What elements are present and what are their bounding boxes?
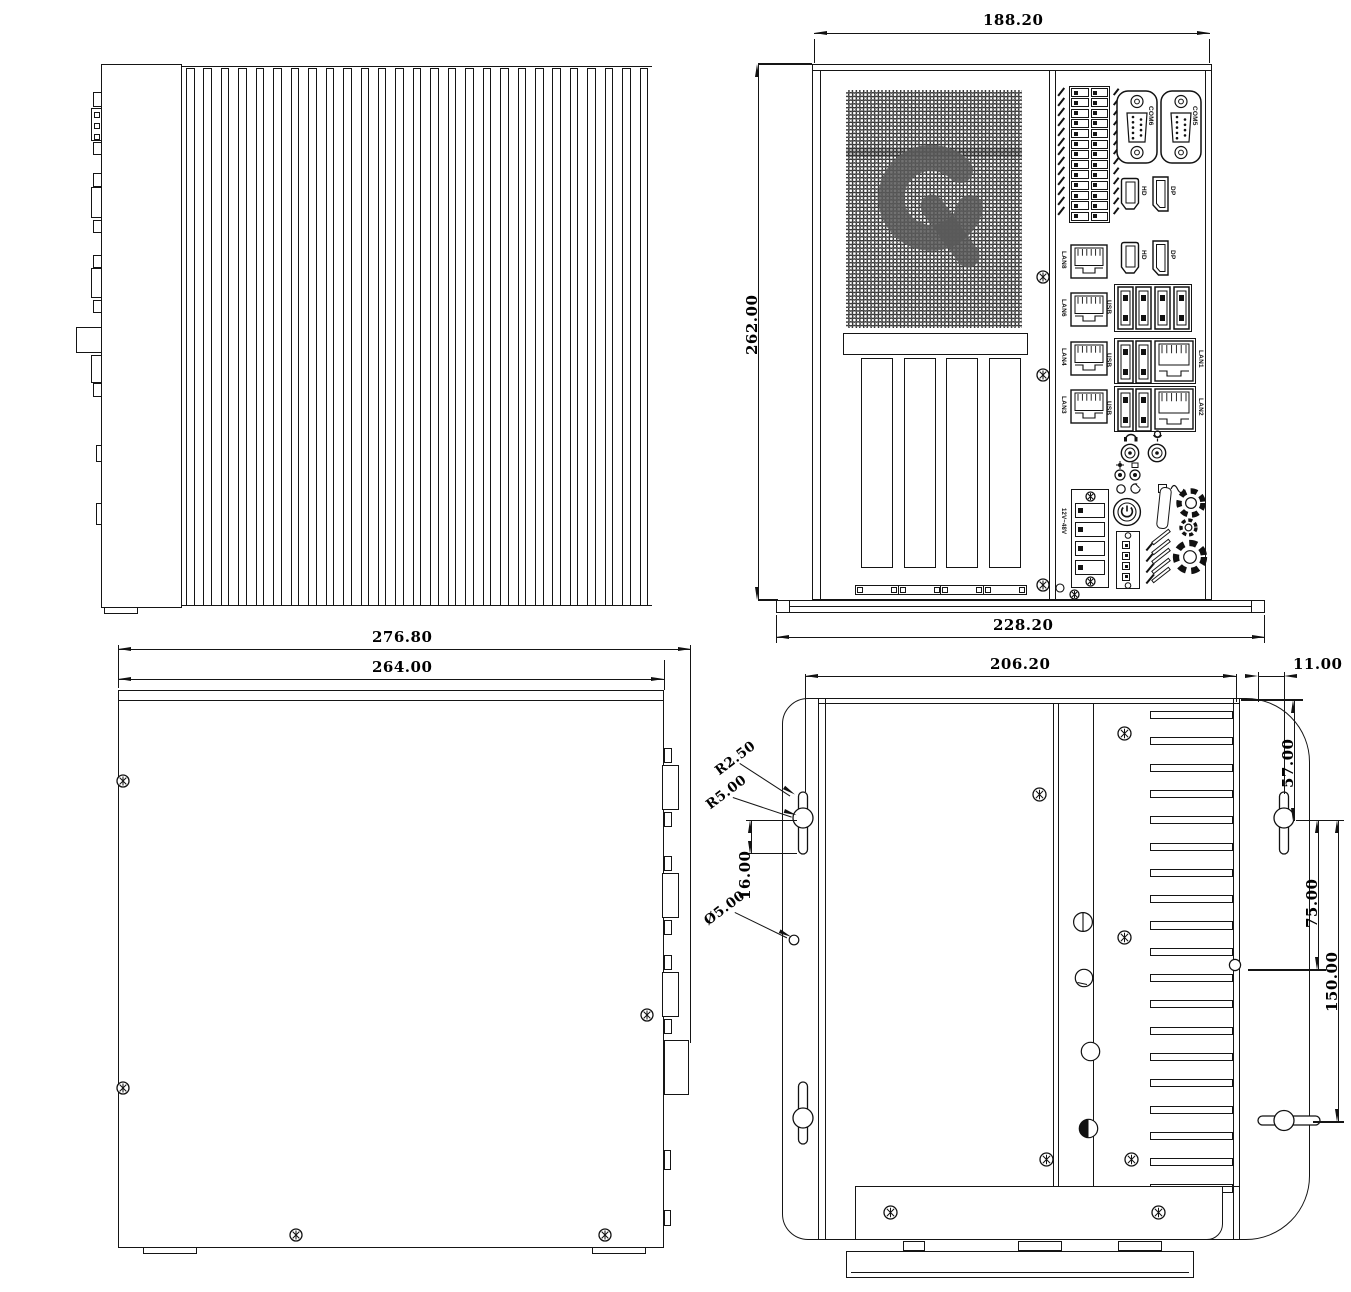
drawing-box [843,333,1028,355]
usb-port [1117,340,1134,384]
drawing-box [664,1019,672,1034]
drawing-line [1128,451,1132,455]
drawing-box [448,68,457,606]
screw-icon [116,774,130,788]
drawing-line [1141,397,1146,403]
screw-icon [116,1081,130,1095]
usb-combo2-label: USB [1105,401,1112,415]
drawing-line [1123,369,1128,375]
drawing-box [91,268,102,298]
drawing-line [758,63,812,64]
drawing-line [812,70,1212,71]
lan4-label: LAN4 [1060,348,1067,366]
lan2-port [1154,388,1194,430]
drawing-line [182,605,652,606]
drawing-line [1185,524,1192,531]
drawing-line [1176,137,1179,140]
usb-port [1135,340,1152,384]
drawing-box [1118,1241,1162,1251]
drawing-line [805,674,818,678]
drawing-line [1179,295,1184,301]
drawing-line [776,635,789,639]
drawing-line [1229,959,1240,970]
lan4-port [1070,341,1108,376]
drawing-line [1093,142,1097,146]
drawing-line [1093,111,1097,115]
drawing-line [1175,96,1187,108]
drawing-line [1184,551,1197,564]
dim-label: 188.20 [983,11,1043,29]
drawing-line [1184,124,1187,127]
drawing-line [746,820,797,821]
drawing-box [94,112,100,118]
drawing-line [664,660,665,690]
drawing-box [1150,1000,1233,1008]
dim-label: 262.00 [743,295,761,355]
hdmi2-label: HD [1140,250,1147,260]
screw-icon [1032,787,1047,802]
drawing-line [1078,546,1083,551]
drawing-line [1179,491,1203,515]
drawing-line [1209,39,1210,63]
drawing-line [1081,1042,1099,1060]
antenna-hole [1130,483,1141,494]
drawing-line [776,637,1265,638]
screw-icon [1036,270,1050,284]
drawing-line [1223,674,1236,678]
drawing-line [1093,204,1097,208]
drawing-line [1074,101,1078,105]
dp-port-1 [1150,175,1171,213]
drawing-line [1075,345,1103,363]
drawing-line [1093,194,1097,198]
drawing-box [76,327,102,353]
drawing-line [1074,152,1078,156]
drawing-line [758,599,778,600]
screw-icon [1117,930,1132,945]
drawing-line [1053,703,1054,1186]
drawing-line [1141,315,1146,321]
drawing-line [1155,431,1161,437]
drawing-box [1018,1241,1062,1251]
drawing-line [118,647,131,651]
drawing-box [776,600,790,613]
drawing-box [91,355,102,383]
drawing-box [93,142,102,155]
drawing-box [1150,1132,1233,1140]
drawing-line [1176,116,1179,119]
drawing-box [273,68,282,606]
drawing-line [1093,152,1097,156]
drawing-line [1175,147,1187,159]
drawing-box [1150,1079,1233,1087]
drawing-box [622,68,631,606]
lineout-icon [1123,430,1138,442]
drawing-line [1141,295,1146,301]
lan3-label: LAN3 [1060,396,1067,414]
drawing-line [1335,1109,1339,1122]
drawing-line [1184,129,1187,132]
drawing-box [1150,1027,1233,1035]
drawing-box [587,68,596,606]
drawing-line [1258,672,1259,702]
drawing-line [1176,543,1204,571]
keyhole-slot [791,1080,815,1150]
drawing-line [790,606,1251,607]
drawing-line [1125,575,1128,578]
drawing-line [1055,70,1056,600]
usb-quad-label: USB [1105,300,1112,314]
drawing-box [101,64,182,608]
drawing-line [1093,163,1097,167]
usb-port [1135,388,1152,432]
drawing-box [1019,587,1025,593]
drawing-line [1236,674,1237,702]
drawing-box [104,607,138,614]
dim-label: 75.00 [1303,879,1321,928]
drawing-line [1157,245,1166,272]
screw-icon [1036,578,1050,592]
drawing-line [1184,134,1187,137]
pin-hole [1122,582,1134,589]
drawing-line [1058,703,1059,1186]
drawing-box [361,68,370,606]
drawing-line [1078,565,1083,570]
screw-icon [289,1228,303,1242]
drawing-box [221,68,230,606]
drawing-line [1176,121,1179,124]
dp2-label: DP [1169,250,1176,259]
drawing-line [814,33,1210,34]
drawing-line [1074,214,1078,218]
drawing-line [1123,397,1128,403]
drawing-box [900,587,906,593]
lan8-port [1070,244,1108,279]
drawing-line [1264,615,1265,643]
drawing-line [1125,565,1128,568]
dp-port-2 [1150,239,1171,277]
drawing-line [1074,132,1078,136]
drawing-box [592,1247,646,1254]
drawing-box [308,68,317,606]
drawing-line [1126,246,1135,267]
lan6-label: LAN6 [1060,299,1067,317]
drawing-line [1171,113,1191,142]
drawing-box [483,68,492,606]
drawing-line [1123,295,1128,301]
drawing-line [776,615,777,643]
drawing-line [1074,183,1078,187]
drawing-box [846,1251,1194,1278]
screw-icon [1151,1205,1166,1220]
drawing-box [1251,600,1265,613]
drawing-box [93,173,102,187]
drawing-box [605,68,614,606]
usb-port [1154,286,1171,330]
drawing-line [1093,214,1097,218]
drawing-line [1296,820,1344,821]
drawing-box [976,587,982,593]
drawing-line [1274,1111,1294,1131]
drawing-line [1127,113,1147,142]
drawing-box [662,873,679,918]
lineout-jack [1120,443,1140,463]
drawing-line [1123,417,1128,423]
technical-drawing-canvas: 188.20 262.00 228.20 276.80 264.00 [0,0,1351,1292]
drawing-line [818,698,1239,699]
gear-icon [1172,539,1208,575]
drawing-line [1140,124,1143,127]
drawing-line [1132,463,1138,468]
drawing-box [664,955,672,970]
drawing-box [1150,895,1233,903]
keyhole-slot [791,790,815,860]
drawing-box [94,134,100,140]
drawing-line [1125,583,1131,589]
drawing-box [430,68,439,606]
drawing-line [1131,147,1143,159]
slot-screw [1072,911,1094,933]
drawing-box [518,68,527,606]
drawing-line [1181,520,1196,535]
drawing-line [1074,111,1078,115]
drawing-line [1123,349,1128,355]
drawing-box [664,920,672,935]
drawing-box [891,587,897,593]
drawing-line [1132,132,1135,135]
screw-icon [1085,576,1096,587]
drawing-line [1126,182,1135,203]
drawing-line [1125,533,1131,539]
screw-icon [883,1205,898,1220]
drawing-line [1075,248,1103,266]
drawing-line [1157,181,1166,208]
lan3-port [1070,389,1108,424]
drawing-line [1093,101,1097,105]
lan1-port [1154,340,1194,382]
drawing-box [946,358,978,568]
mic-icon [1151,429,1164,442]
drawing-line [805,674,806,792]
drawing-box [93,300,102,313]
drawing-box [1150,869,1233,877]
drawing-box [93,255,102,268]
drawing-line [1291,808,1295,821]
lan1-label: LAN1 [1197,350,1204,368]
drawing-line [748,820,752,833]
drawing-box [93,383,102,397]
drawing-box [664,856,672,871]
screw-icon [1039,1152,1054,1167]
drawing-box [664,748,672,763]
lan6-port [1070,292,1108,327]
drawing-box [857,587,863,593]
drawing-line [1248,969,1326,970]
drawing-box [93,92,102,107]
screw-icon [1036,368,1050,382]
drawing-box [1150,1053,1233,1061]
drawing-line [182,66,652,67]
drawing-line [1093,183,1097,187]
drawing-box [662,765,679,810]
drawing-box [664,1150,671,1170]
dim-label: 206.20 [990,655,1050,673]
drawing-line [818,703,1239,704]
drawing-line [1184,118,1187,121]
hdmi-port-1 [1120,177,1141,211]
drawing-line [1093,91,1097,95]
drawing-box [570,68,579,606]
drawing-line [118,645,119,688]
drawing-box [552,68,561,606]
drawing-line [1205,70,1206,600]
dim-label: 57.00 [1279,739,1297,788]
drawing-line [793,808,813,828]
drawing-line [805,676,1236,677]
drawing-box [1150,711,1233,719]
hdd-led-icon [1131,461,1139,469]
hdmi1-label: HD [1140,186,1147,196]
com6-port [1116,90,1158,164]
drawing-line [820,70,821,600]
com6-label: COM6 [1147,106,1154,126]
screw-icon [1124,1152,1139,1167]
drawing-line [1154,435,1162,442]
drawing-line [118,649,691,650]
drawing-line [1093,704,1094,1186]
drawing-line [1176,126,1179,129]
usb-port [1117,286,1134,330]
drawing-box [861,358,893,568]
brand-logo-icon [872,136,996,282]
dim-label: 264.00 [372,658,432,676]
drawing-line [1074,173,1078,177]
drawing-line [1141,417,1146,423]
drawing-line [1284,674,1297,678]
power-button-icon [1112,497,1142,527]
drawing-line [690,645,691,1043]
drawing-box [535,68,544,606]
mic-jack [1147,443,1167,463]
screw-icon [1117,726,1132,741]
drawing-box [186,68,195,606]
drawing-line [1093,173,1097,177]
drawing-box [1150,974,1233,982]
usb-port [1117,388,1134,432]
drawing-box [640,68,649,606]
drawing-box [465,68,474,606]
drawing-box [256,68,265,606]
dim-label: 11.00 [1293,655,1342,673]
drawing-line [793,1108,813,1128]
drawing-line [1123,315,1128,321]
drawing-line [755,587,759,600]
drawing-line [1245,674,1258,678]
drawing-box [664,812,672,827]
drawing-box [1150,737,1233,745]
drawing-line [1135,437,1138,442]
drawing-box [143,1247,197,1254]
drawing-box [1150,921,1233,929]
dp1-label: DP [1169,186,1176,195]
drawing-line [1124,437,1127,442]
drawing-line [1117,485,1125,493]
dim-label: 276.80 [372,628,432,646]
drawing-line [1140,118,1143,121]
drawing-box [664,1210,671,1226]
drawing-line [1049,70,1050,600]
drawing-line [1258,676,1285,677]
hole [1074,968,1094,988]
drawing-line [1141,369,1146,375]
drawing-line [118,677,131,681]
power-led-icon [1116,461,1124,469]
drawing-line [1074,142,1078,146]
drawing-line [1132,116,1135,119]
drawing-box [93,220,102,233]
gear-icon [1175,487,1207,519]
drawing-box [238,68,247,606]
drawing-line [651,677,664,681]
drawing-line [1159,344,1189,365]
bottom-cover [855,1186,1223,1240]
drawing-line [851,1272,1189,1273]
drawing-box [1150,1106,1233,1114]
gear-icon [1177,516,1200,539]
drawing-line [118,700,664,701]
drawing-line [818,698,819,1240]
screw-icon [1069,589,1080,600]
hdmi-port-2 [1120,241,1141,275]
drawing-line [814,31,827,35]
drawing-box [664,1040,689,1095]
drawing-line [1315,820,1319,833]
drawing-line [755,64,759,77]
drawing-line [814,39,815,63]
usb-port [1173,286,1190,330]
drawing-line [1186,498,1197,509]
drawing-line [1078,527,1083,532]
drawing-box [378,68,387,606]
drawing-box [985,587,991,593]
drawing-line [825,698,826,1240]
drawing-line [1093,132,1097,136]
lan2-label: LAN2 [1197,398,1204,416]
drawing-box [904,358,936,568]
drawing-line [1141,349,1146,355]
drawing-box [203,68,212,606]
usb-combo1-label: USB [1105,353,1112,367]
drawing-line [1131,96,1143,108]
drawing-line [1140,134,1143,137]
drawing-line [1125,544,1128,547]
drawing-line [1074,91,1078,95]
drawing-box [96,503,102,525]
screw-icon [640,1008,654,1022]
drawing-box [118,690,664,1248]
drawing-line [1335,820,1339,833]
drawing-box [395,68,404,606]
drawing-line [1132,126,1135,129]
drawing-line [1291,700,1295,713]
drawing-box [343,68,352,606]
drawing-geometry [0,0,1351,1292]
drawing-line [1074,204,1078,208]
drawing-box [1150,1158,1233,1166]
drawing-line [1056,584,1064,592]
drawing-line [1160,295,1165,301]
screw-icon [598,1228,612,1242]
